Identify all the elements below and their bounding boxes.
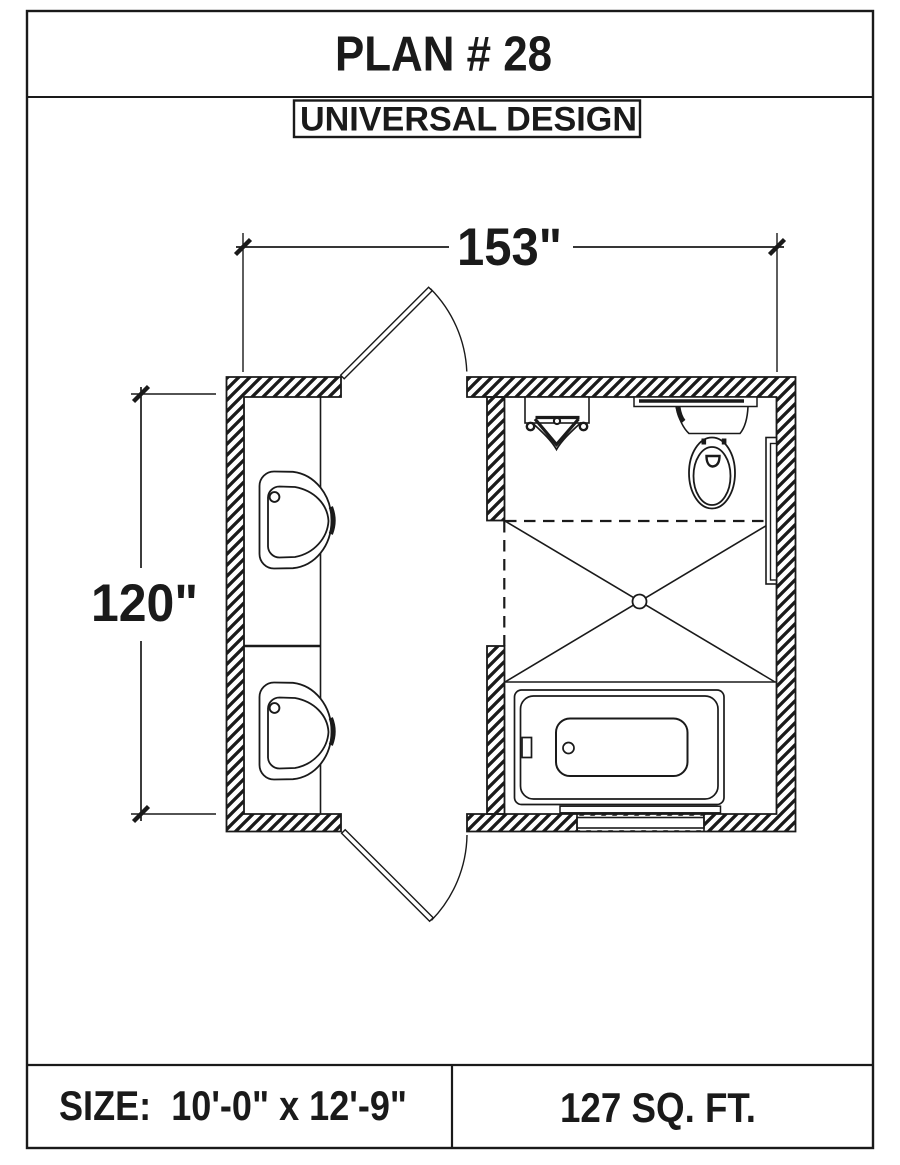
svg-text:153": 153" — [457, 218, 562, 277]
svg-text:PLAN # 28: PLAN # 28 — [335, 28, 552, 82]
svg-text:127 SQ. FT.: 127 SQ. FT. — [560, 1084, 756, 1131]
svg-text:120": 120" — [91, 574, 198, 633]
svg-text:SIZE: 10'-0" x 12'-9": SIZE: 10'-0" x 12'-9" — [59, 1082, 407, 1129]
svg-text:UNIVERSAL DESIGN: UNIVERSAL DESIGN — [300, 101, 637, 139]
